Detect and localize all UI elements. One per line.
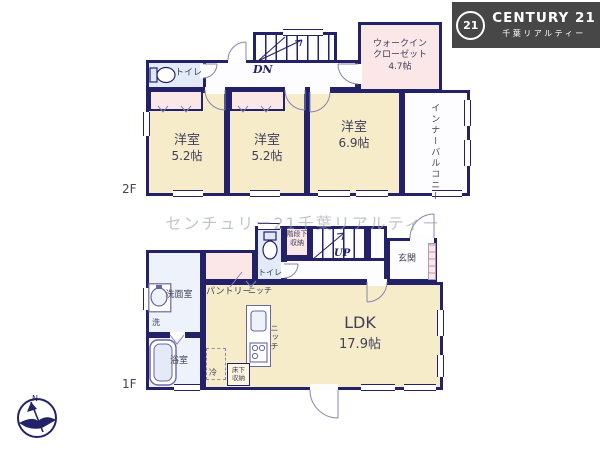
window	[318, 190, 350, 197]
entrance-label: 玄関	[398, 254, 416, 265]
toilet-icon	[149, 65, 177, 85]
north-label: N	[32, 394, 38, 403]
bedroom-1-name: 洋室	[174, 133, 200, 148]
patio-door-opening	[310, 384, 338, 391]
toilet-icon	[261, 231, 279, 263]
bedroom-3-size: 6.9帖	[338, 136, 369, 150]
underfloor-line2: 収納	[232, 374, 245, 382]
window	[173, 190, 203, 197]
bedroom-2-label: 洋室 5.2帖	[237, 133, 297, 166]
window	[250, 190, 280, 197]
window	[464, 140, 471, 166]
wic-size: 4.7帖	[388, 62, 411, 72]
toilet-label-2f: トイレ	[175, 68, 202, 79]
ldk-name: LDK	[344, 313, 376, 332]
stairs-down-label: DN	[253, 63, 273, 77]
door-opening	[310, 87, 330, 94]
niche-top-label: ニッチ	[248, 286, 272, 296]
hallway-2f	[203, 60, 358, 90]
floor-label-2f: 2F	[122, 182, 137, 196]
century21-badge-icon: 21	[456, 11, 485, 40]
laundry-label: 洗	[152, 318, 160, 328]
pantry-label: パントリー	[206, 287, 251, 298]
bedroom-2-size: 5.2帖	[251, 149, 282, 163]
inner-balcony-label: インナーバルコニー	[428, 103, 439, 202]
window	[464, 100, 471, 126]
front-door-opening	[410, 235, 434, 242]
bedroom-2-name: 洋室	[254, 133, 280, 148]
underfloor-line1: 床下	[232, 366, 245, 374]
closet-bedroom-1	[149, 90, 203, 111]
fridge-label: 冷	[209, 368, 217, 378]
brand-subtitle: 千葉リアルティー	[492, 28, 596, 39]
toilet-label-1f: トイレ	[258, 268, 282, 278]
washroom-label: 洗面室	[158, 290, 200, 301]
door-opening	[170, 332, 185, 339]
door-opening	[205, 87, 225, 94]
floorplan-image: 21 CENTURY 21 千葉リアルティー センチュリー21千葉リアルティー …	[0, 0, 600, 450]
window	[404, 384, 436, 391]
window	[361, 384, 395, 391]
century21-logo: 21 CENTURY 21 千葉リアルティー	[452, 2, 600, 48]
brand-text: CENTURY 21 千葉リアルティー	[492, 11, 596, 39]
wic-line1: ウォークイン	[373, 39, 427, 49]
niche-side-label: ニッチ	[269, 324, 279, 351]
wic-label: ウォークイン クローゼット 4.7帖	[361, 39, 439, 73]
ldk-label: LDK 17.9帖	[320, 313, 400, 353]
closet-bedroom-2	[230, 90, 285, 111]
floor-label-1f: 1F	[122, 377, 137, 391]
brand-name: CENTURY 21	[492, 11, 596, 26]
bedroom-1-size: 5.2帖	[171, 149, 202, 163]
stairs-up-label: UP	[334, 248, 350, 261]
kitchen-sink-stove-icon	[246, 305, 271, 367]
door-opening	[228, 57, 246, 64]
window	[356, 190, 388, 197]
bedroom-3-name: 洋室	[341, 120, 367, 135]
bedroom-1-label: 洋室 5.2帖	[156, 133, 218, 166]
bedroom-3-label: 洋室 6.9帖	[318, 120, 390, 153]
window	[143, 112, 150, 136]
door-opening	[281, 262, 288, 278]
bathroom-label: 浴室	[170, 356, 188, 367]
underfloor-storage-label: 床下 収納	[228, 366, 249, 382]
window	[283, 29, 323, 36]
pantry	[203, 250, 255, 282]
watermark: センチュリー21千葉リアルティー	[148, 210, 458, 234]
wic-line2: クローゼット	[373, 50, 427, 60]
window	[437, 310, 444, 336]
understairs-line2: 収納	[290, 239, 304, 247]
door-opening	[285, 87, 305, 94]
entrance-step	[428, 243, 436, 280]
ldk-size: 17.9帖	[339, 337, 381, 352]
door-opening	[367, 279, 387, 286]
window	[437, 355, 444, 377]
compass-icon: N	[12, 392, 62, 442]
